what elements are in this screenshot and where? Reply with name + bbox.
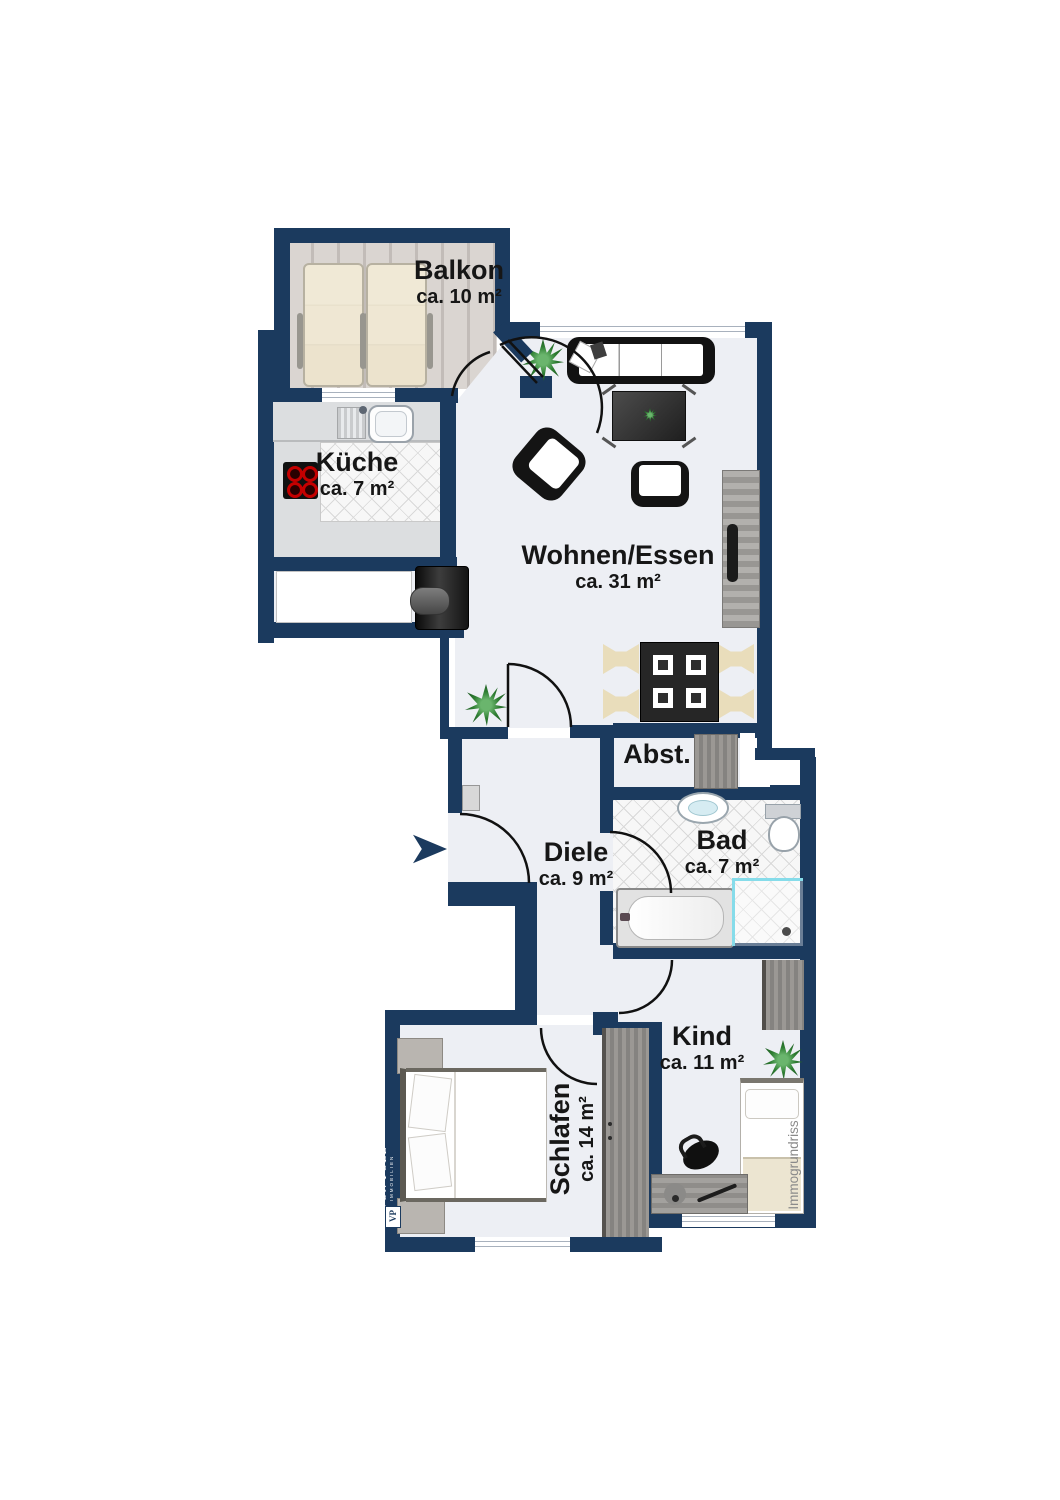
place-setting-center bbox=[691, 660, 701, 670]
wall bbox=[385, 1010, 532, 1025]
wardrobe-handle bbox=[608, 1122, 612, 1126]
desk-item bbox=[672, 1195, 679, 1202]
room-label-balkon: Balkon ca. 10 m² bbox=[414, 256, 504, 309]
bath-sink bbox=[677, 792, 729, 824]
room-area: ca. 7 m² bbox=[685, 855, 759, 879]
kids-wardrobe bbox=[762, 960, 804, 1030]
room-name: Abst. bbox=[623, 740, 691, 769]
wall bbox=[448, 738, 462, 813]
dining-table bbox=[640, 642, 719, 722]
bed-duvet-line bbox=[454, 1069, 456, 1201]
room-area: ca. 31 m² bbox=[521, 570, 714, 594]
tub-basin bbox=[628, 896, 724, 940]
room-label-schlafen: Schlafen ca. 14 m² bbox=[546, 1069, 604, 1209]
toilet-bowl bbox=[768, 816, 800, 852]
toilet bbox=[765, 804, 799, 850]
wall-corner-block bbox=[520, 376, 552, 398]
lounger-armrest bbox=[360, 313, 366, 369]
room-area: ca. 9 m² bbox=[539, 867, 613, 891]
room-name: Kind bbox=[660, 1022, 745, 1051]
bedroom-wardrobe bbox=[602, 1028, 649, 1237]
faucet-icon bbox=[359, 406, 367, 414]
room-area: ca. 14 m² bbox=[575, 1069, 599, 1209]
stove bbox=[283, 462, 318, 499]
monogram-text: VP bbox=[388, 1209, 398, 1223]
place-setting-center bbox=[658, 693, 668, 703]
plant-icon bbox=[643, 408, 657, 422]
window bbox=[682, 1212, 775, 1227]
coffee-table bbox=[612, 391, 686, 441]
room-area: ca. 11 m² bbox=[660, 1051, 745, 1075]
room-name: Diele bbox=[539, 838, 613, 867]
built-in-cabinet bbox=[276, 571, 412, 623]
sofa bbox=[567, 337, 715, 384]
sink-bowl bbox=[688, 800, 718, 816]
room-name: Bad bbox=[685, 826, 759, 855]
desk-chair bbox=[678, 1136, 722, 1176]
agency-monogram: VP bbox=[385, 1206, 401, 1228]
desk bbox=[651, 1174, 748, 1214]
room-name: Wohnen/Essen bbox=[521, 541, 714, 570]
wall bbox=[600, 800, 613, 833]
appliance-pipe bbox=[410, 587, 450, 615]
wall bbox=[440, 388, 456, 568]
tv bbox=[727, 524, 738, 582]
window bbox=[322, 388, 395, 403]
room-name: Küche bbox=[316, 448, 399, 477]
appliance bbox=[415, 566, 469, 630]
sink-basin bbox=[375, 411, 407, 437]
wall-niche bbox=[772, 760, 800, 785]
armchair-seat bbox=[639, 465, 681, 496]
storage-wardrobe bbox=[694, 734, 738, 789]
wall-niche bbox=[740, 733, 755, 787]
bed-edge bbox=[406, 1198, 546, 1202]
floor-plan: Balkon ca. 10 m² Küche ca. 7 m² Wohnen/E… bbox=[0, 0, 1060, 1500]
bed-pillow bbox=[408, 1074, 452, 1132]
bathtub bbox=[616, 888, 734, 948]
wardrobe-handle bbox=[608, 1136, 612, 1140]
hall-cabinet bbox=[462, 785, 480, 811]
bed-pillow bbox=[408, 1133, 452, 1191]
room-label-kueche: Küche ca. 7 m² bbox=[316, 448, 399, 501]
wall bbox=[515, 895, 537, 1025]
room-name: Balkon bbox=[414, 256, 504, 285]
wall bbox=[440, 630, 449, 738]
room-label-bad: Bad ca. 7 m² bbox=[685, 826, 759, 879]
wall bbox=[274, 228, 510, 243]
bed-edge bbox=[406, 1068, 546, 1072]
shower bbox=[732, 878, 803, 946]
tub-faucet bbox=[620, 913, 630, 921]
desk-lamp bbox=[697, 1183, 737, 1202]
room-label-abstell: Abst. bbox=[623, 740, 691, 769]
room-label-diele: Diele ca. 9 m² bbox=[539, 838, 613, 891]
place-setting-center bbox=[658, 660, 668, 670]
burner bbox=[287, 482, 303, 498]
window bbox=[475, 1237, 570, 1252]
window bbox=[540, 322, 745, 338]
room-area: ca. 10 m² bbox=[414, 285, 504, 309]
watermark: Immogrundriss bbox=[786, 1090, 804, 1240]
wall bbox=[600, 891, 613, 945]
wall bbox=[274, 228, 290, 393]
wall bbox=[258, 330, 274, 643]
double-bed bbox=[400, 1068, 547, 1202]
burner bbox=[287, 466, 303, 482]
room-area: ca. 7 m² bbox=[316, 477, 399, 501]
room-label-kind: Kind ca. 11 m² bbox=[660, 1022, 745, 1075]
shower-drain bbox=[782, 927, 791, 936]
wall bbox=[448, 882, 537, 906]
lounger-armrest bbox=[297, 313, 303, 369]
room-name: Schlafen bbox=[546, 1069, 575, 1209]
armchair bbox=[631, 461, 689, 507]
kitchen-sink bbox=[368, 405, 414, 443]
sun-lounger bbox=[303, 263, 364, 387]
room-label-wohnen: Wohnen/Essen ca. 31 m² bbox=[521, 541, 714, 594]
place-setting-center bbox=[691, 693, 701, 703]
entry-arrow-icon bbox=[413, 832, 447, 866]
lounger-armrest bbox=[427, 313, 433, 369]
